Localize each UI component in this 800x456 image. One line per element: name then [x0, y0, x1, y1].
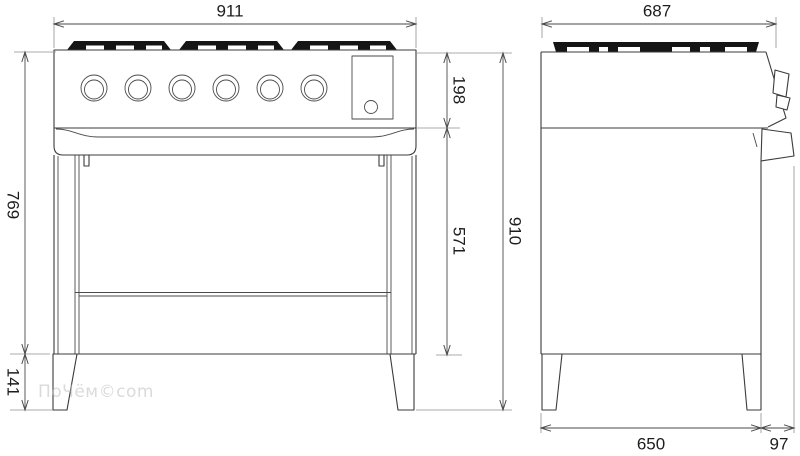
- dim-label-oven-height-571: 571: [450, 227, 469, 255]
- side-view: [541, 42, 794, 410]
- legs-side: [542, 354, 761, 410]
- door-handle-front: [56, 129, 414, 137]
- burner-grates-front: [67, 41, 397, 50]
- body-side: [541, 52, 794, 354]
- door-notch: [753, 133, 757, 147]
- control-knobs: [81, 75, 327, 101]
- dim-label-body-height-769: 769: [4, 191, 23, 219]
- igniter-circle: [365, 101, 378, 114]
- watermark: ПоЧём©com: [38, 382, 154, 402]
- technical-drawing-page: 911 687 769 141 198 571 910 650 97 ПоЧём…: [0, 0, 800, 456]
- side-plate-panel: [352, 56, 393, 119]
- knob-profile: [773, 70, 789, 97]
- leg-side-right: [742, 354, 761, 410]
- oven-cabinet-front: [54, 155, 416, 354]
- dim-label-depth-687: 687: [643, 2, 671, 21]
- door-handle-side: [761, 129, 794, 161]
- storage-drawer: [75, 293, 391, 297]
- dim-label-width-911: 911: [216, 2, 243, 21]
- control-panel-front: [54, 50, 416, 155]
- range-cooker-dimension-drawing: 911 687 769 141 198 571 910 650 97 ПоЧём…: [0, 0, 800, 456]
- dim-label-hob-height-198: 198: [450, 76, 469, 104]
- leg-front-right: [390, 354, 414, 410]
- door-hinge-right: [379, 155, 384, 166]
- door-hinge-left: [84, 155, 89, 166]
- leg-side-left: [542, 354, 562, 410]
- oven-door: [75, 155, 391, 354]
- knob-profile-small: [776, 95, 790, 110]
- front-view: [53, 41, 416, 410]
- dim-label-body-depth-650: 650: [637, 435, 665, 454]
- dim-label-leg-height-141: 141: [4, 368, 23, 396]
- dim-label-handle-depth-97: 97: [770, 435, 789, 454]
- dim-label-total-height-910: 910: [506, 217, 525, 245]
- burner-grate-side: [553, 42, 759, 52]
